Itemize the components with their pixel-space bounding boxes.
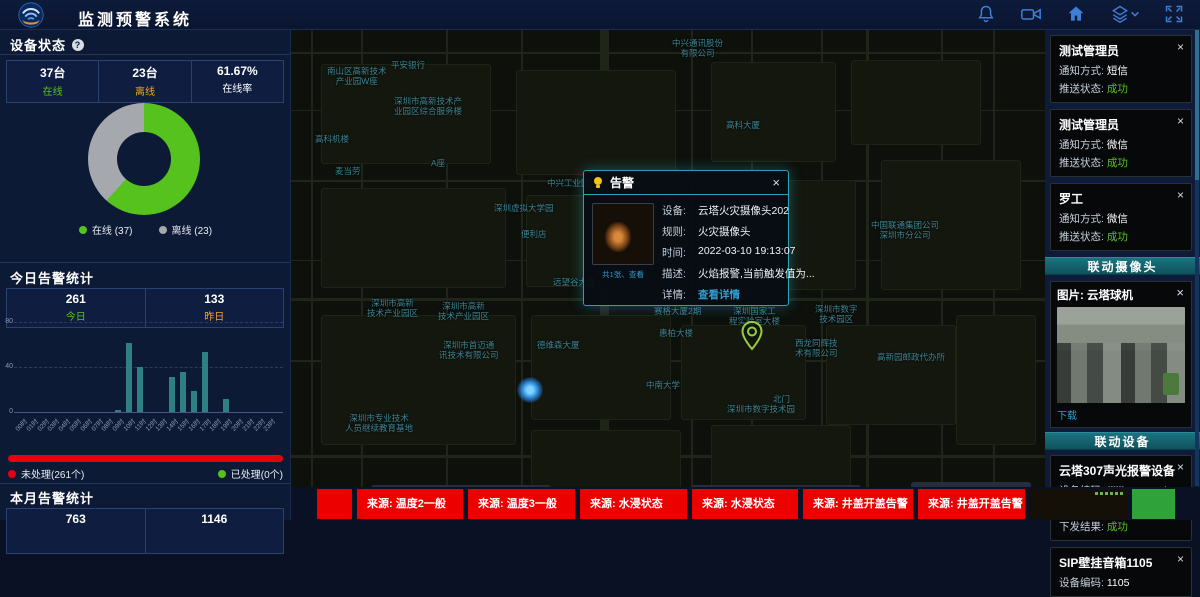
map-place-label: 北门: [773, 394, 790, 404]
divider: [0, 54, 291, 55]
close-icon[interactable]: ×: [1177, 461, 1184, 474]
alarm-popup-fields: 设备:云塔火灾摄像头202规则:火灾摄像头时间:2022-03-10 19:13…: [662, 203, 815, 308]
map-place-label: 深圳虚拟大学园: [494, 203, 554, 213]
alarm-thumb-wrap: 共1张、查看: [592, 203, 654, 308]
card-row: 通知方式: 短信: [1059, 63, 1183, 78]
bar: [191, 391, 197, 412]
alarm-popup: 告警 × 共1张、查看 设备:云塔火灾摄像头202规则:火灾摄像头时间:2022…: [583, 170, 789, 306]
stat-value: 133: [146, 292, 284, 306]
stat-value: 763: [7, 512, 145, 526]
map-place-label: 平安银行: [391, 60, 425, 70]
stat-label: 在线率: [192, 80, 283, 95]
ticker-alarm-item[interactable]: 来源: 井盖开盖告警: [803, 489, 913, 519]
map-place-label: 高科机楼: [315, 134, 349, 144]
map-block: [531, 315, 671, 420]
month-alarms-stats: 7631146: [6, 508, 284, 554]
map-place-label: 惠柏大楼: [659, 328, 693, 338]
top-bar: 监测预警系统: [0, 0, 1200, 30]
card-row: 通知方式: 微信: [1059, 137, 1183, 152]
y-tick-label: 40: [4, 363, 13, 370]
stat-value: 261: [7, 292, 145, 306]
download-link[interactable]: 下载: [1057, 407, 1185, 422]
home-icon[interactable]: [1066, 4, 1086, 24]
close-icon[interactable]: ×: [1176, 286, 1184, 299]
legend-label: 离线 (23): [172, 222, 213, 237]
map-block: [851, 60, 981, 145]
close-icon[interactable]: ×: [1177, 189, 1184, 202]
popup-field-value: 2022-03-10 19:13:07: [698, 245, 796, 260]
map-place-label: 深圳市数字技术园: [727, 404, 795, 414]
ticker-snapshot[interactable]: [1030, 489, 1127, 519]
device-status-title: 设备状态 ?: [10, 35, 84, 54]
notification-card: ×测试管理员通知方式: 短信推送状态: 成功: [1050, 35, 1192, 103]
alarm-lamp-icon: [592, 176, 604, 190]
close-icon[interactable]: ×: [1177, 553, 1184, 566]
device-stat: 61.67%在线率: [192, 61, 283, 102]
map-place-label: 中兴通讯股份 有限公司: [672, 38, 723, 58]
map-canvas[interactable]: 中兴通讯股份 有限公司平安银行南山区高新技术 产业园W座深圳市高新技术产 业园区…: [291, 30, 1045, 520]
legend-dot: [79, 226, 87, 234]
map-pin-icon[interactable]: [739, 320, 765, 352]
x-axis: [14, 412, 283, 413]
alarm-snapshot-image[interactable]: [592, 203, 654, 265]
stat-value: 23台: [99, 64, 190, 81]
device-status-stats: 37台在线23台离线61.67%在线率: [6, 60, 284, 103]
map-place-label: 南山区高新技术 产业园W座: [327, 66, 387, 86]
card-row: 推送状态: 成功: [1059, 81, 1183, 96]
ticker-alarm-item[interactable]: 来源: 温度2一般: [357, 489, 463, 519]
stat-value: 1146: [146, 512, 284, 526]
map-place-label: 深圳市数字 技术园区: [815, 304, 858, 324]
map-device-dot[interactable]: [517, 377, 543, 403]
ticker-alarm-item[interactable]: 来源: 井盖开盖告警: [918, 489, 1025, 519]
handled-label: 已处理(0个): [231, 466, 283, 481]
bar: [169, 377, 175, 412]
linked-devices-header: 联动设备: [1045, 432, 1200, 450]
today-alarms-title: 今日告警统计: [10, 268, 94, 287]
ticker-alarm-item[interactable]: [317, 489, 352, 519]
popup-field-label: 描述:: [662, 266, 692, 281]
device-card: ×SIP壁挂音箱1105设备编码: 1105: [1050, 547, 1192, 597]
map-place-label: 中国联通集团公司 深圳市分公司: [871, 220, 939, 240]
stat-value: 61.67%: [192, 64, 283, 78]
map-road: [291, 52, 1045, 54]
unhandled-dot: [8, 470, 16, 478]
popup-field-label: 规则:: [662, 224, 692, 239]
popup-field-value: 火焰报警,当前触发值为...: [698, 266, 815, 281]
bar: [126, 343, 132, 412]
page-title: 监测预警系统: [78, 6, 192, 30]
alarm-snapshot-caption[interactable]: 共1张、查看: [592, 269, 654, 280]
map-place-label: 便利店: [521, 229, 547, 239]
bar: [180, 372, 186, 413]
bar: [202, 352, 208, 412]
legend-label: 在线 (37): [92, 222, 133, 237]
popup-field-row: 详情:查看详情: [662, 287, 815, 302]
stat-label: 在线: [7, 83, 98, 98]
divider: [0, 483, 291, 484]
handled-dot: [218, 470, 226, 478]
alarm-ticker: 来源: 温度2一般来源: 温度3一般来源: 水浸状态来源: 水浸状态来源: 井盖…: [291, 487, 1200, 520]
popup-field-label: 设备:: [662, 203, 692, 218]
map-block: [956, 315, 1036, 445]
map-place-label: 高科大厦: [726, 120, 760, 130]
map-place-label: 德维森大厦: [537, 340, 580, 350]
map-place-label: 麦当劳: [335, 166, 361, 176]
left-stats-panel: 设备状态 ? 37台在线23台离线61.67%在线率 在线 (37)离线 (23…: [0, 30, 291, 520]
camera-photo[interactable]: [1057, 307, 1185, 403]
close-icon[interactable]: ×: [1177, 115, 1184, 128]
map-place-label: 深圳市高新技术产 业园区综合服务楼: [394, 96, 462, 116]
stat-value: 37台: [7, 64, 98, 81]
notification-card: ×罗工通知方式: 微信推送状态: 成功: [1050, 183, 1192, 251]
map-block: [321, 188, 506, 288]
popup-field-row: 设备:云塔火灾摄像头202: [662, 203, 815, 218]
alarm-progress-legend: 未处理(261个) 已处理(0个): [8, 466, 283, 481]
right-notifications-panel: ×测试管理员通知方式: 短信推送状态: 成功×测试管理员通知方式: 微信推送状态…: [1045, 30, 1200, 520]
legend-dot: [159, 226, 167, 234]
map-block: [711, 62, 836, 162]
notification-card: ×测试管理员通知方式: 微信推送状态: 成功: [1050, 109, 1192, 177]
stat-label: 离线: [99, 83, 190, 98]
legend-item: 在线 (37): [79, 222, 133, 237]
video-camera-icon[interactable]: [1020, 4, 1042, 24]
map-place-label: 高新园邮政代办所: [877, 352, 945, 362]
ticker-alarm-item[interactable]: 来源: 温度3一般: [468, 489, 575, 519]
bar: [137, 367, 143, 412]
divider: [0, 262, 291, 263]
popup-field-label: 时间:: [662, 245, 692, 260]
card-title: 罗工: [1059, 190, 1183, 207]
card-row: 推送状态: 成功: [1059, 155, 1183, 170]
map-road: [311, 30, 313, 520]
layers-icon[interactable]: [1110, 4, 1140, 24]
popup-field-value: 火灾摄像头: [698, 224, 751, 239]
bar: [223, 399, 229, 413]
map-place-label: 西龙同辉技 术有限公司: [795, 338, 838, 358]
popup-field-label: 详情:: [662, 287, 692, 302]
gridline: [14, 322, 283, 323]
alarm-progress-bar: [8, 455, 283, 462]
map-block: [826, 325, 956, 425]
linked-camera-card: × 图片: 云塔球机 下载: [1050, 281, 1192, 428]
scrollbar-thumb[interactable]: [1195, 30, 1199, 180]
map-block: [531, 430, 681, 490]
close-icon[interactable]: ×: [772, 176, 780, 189]
card-row: 设备编码: 1105: [1059, 575, 1183, 590]
card-title: 测试管理员: [1059, 116, 1183, 133]
ticker-green-block[interactable]: [1132, 489, 1175, 519]
popup-field-row: 描述:火焰报警,当前触发值为...: [662, 266, 815, 281]
month-stat: 1146: [146, 509, 284, 553]
app-logo-icon: [18, 2, 44, 28]
card-row: 通知方式: 微信: [1059, 211, 1183, 226]
detail-link[interactable]: 查看详情: [698, 287, 740, 302]
device-stat: 37台在线: [7, 61, 99, 102]
map-place-label: 深圳市专业技术 人员继续教育基地: [345, 413, 413, 433]
map-place-label: 深圳市高新 技术产业园区: [438, 301, 489, 321]
map-block: [516, 70, 676, 175]
device-stat: 23台离线: [99, 61, 191, 102]
popup-field-row: 时间:2022-03-10 19:13:07: [662, 245, 815, 260]
month-alarms-title: 本月告警统计: [10, 488, 94, 507]
legend-item: 离线 (23): [159, 222, 213, 237]
linked-camera-header: 联动摄像头: [1045, 257, 1200, 275]
gridline: [14, 367, 283, 368]
y-tick-label: 0: [4, 408, 13, 415]
map-place-label: 深圳市首迈通 讯技术有限公司: [439, 340, 499, 360]
y-tick-label: 80: [4, 318, 13, 325]
bar: [115, 410, 121, 412]
card-title: 测试管理员: [1059, 42, 1183, 59]
map-block: [711, 425, 851, 490]
alarm-popup-title: 告警: [610, 174, 766, 191]
help-icon[interactable]: ?: [72, 39, 84, 51]
map-place-label: 深圳市高新 技术产业园区: [367, 298, 418, 318]
popup-field-row: 规则:火灾摄像头: [662, 224, 815, 239]
card-title: SIP壁挂音箱1105: [1059, 554, 1183, 571]
close-icon[interactable]: ×: [1177, 41, 1184, 54]
ticker-alarm-item[interactable]: 来源: 水浸状态: [580, 489, 687, 519]
card-row: 推送状态: 成功: [1059, 229, 1183, 244]
fullscreen-icon[interactable]: [1164, 4, 1184, 24]
alarm-popup-titlebar: 告警 ×: [584, 171, 788, 195]
popup-field-value: 云塔火灾摄像头202: [698, 203, 789, 218]
map-place-label: A座: [431, 158, 445, 168]
bell-icon[interactable]: [976, 4, 996, 24]
month-stat: 763: [7, 509, 146, 553]
card-title: 云塔307声光报警设备: [1059, 462, 1183, 479]
today-alarms-bar-chart: 8040000时01时02时03时04时05时06时07时08时09时10时11…: [0, 312, 291, 437]
unhandled-label: 未处理(261个): [21, 466, 84, 481]
donut-legend: 在线 (37)离线 (23): [0, 222, 291, 237]
card-row: 下发结果: 成功: [1059, 519, 1183, 534]
camera-card-title: 图片: 云塔球机: [1057, 287, 1185, 303]
map-place-label: 中南大学: [646, 380, 680, 390]
ticker-alarm-item[interactable]: 来源: 水浸状态: [692, 489, 798, 519]
